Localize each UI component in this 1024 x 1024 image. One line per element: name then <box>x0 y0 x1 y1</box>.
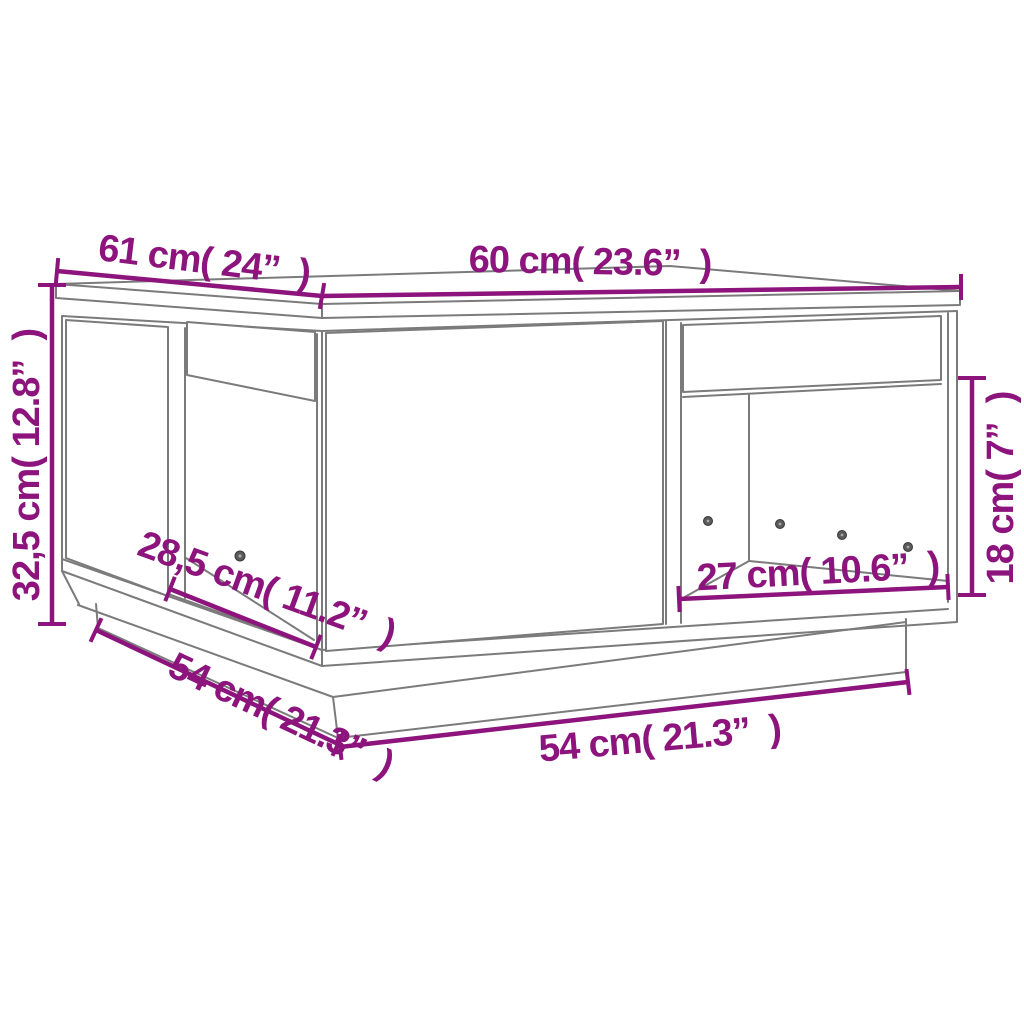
screw-icon <box>776 520 785 529</box>
dimension-label-54cm-front: 54 cm( 21.3” ) <box>537 708 782 771</box>
screw-icon <box>704 517 713 526</box>
left-niche-back-panel <box>187 322 315 401</box>
tick-61cm-start <box>56 258 58 284</box>
right-door-panel <box>326 321 663 651</box>
tick-27cm-end <box>947 574 948 600</box>
tick-27cm-start <box>678 586 679 612</box>
dimension-label-32-5cm: 32,5 cm( 12.8” ) <box>6 329 48 601</box>
drawer-front-panel <box>683 316 941 392</box>
screw-icon <box>838 531 847 540</box>
dimension-label-54cm-left: 54 cm( 21.3” ) <box>162 645 400 786</box>
tick-54cm-front-end <box>907 669 910 695</box>
dimension-diagram-page: 61 cm( 24” ) 60 cm( 23.6” ) 32,5 cm( 12.… <box>0 0 1024 1024</box>
dimension-label-18cm: 18 cm( 7” ) <box>980 392 1022 585</box>
coffee-table-dimension-diagram: 61 cm( 24” ) 60 cm( 23.6” ) 32,5 cm( 12.… <box>0 0 1024 1024</box>
carcass-right-face <box>322 311 957 666</box>
dimension-label-60cm: 60 cm( 23.6” ) <box>468 239 711 285</box>
dimension-32-5cm: 32,5 cm( 12.8” ) <box>6 285 66 624</box>
dimension-18cm: 18 cm( 7” ) <box>958 378 1022 595</box>
right-niche-screws <box>704 517 913 552</box>
dimension-27cm: 27 cm( 10.6” ) <box>678 545 948 612</box>
